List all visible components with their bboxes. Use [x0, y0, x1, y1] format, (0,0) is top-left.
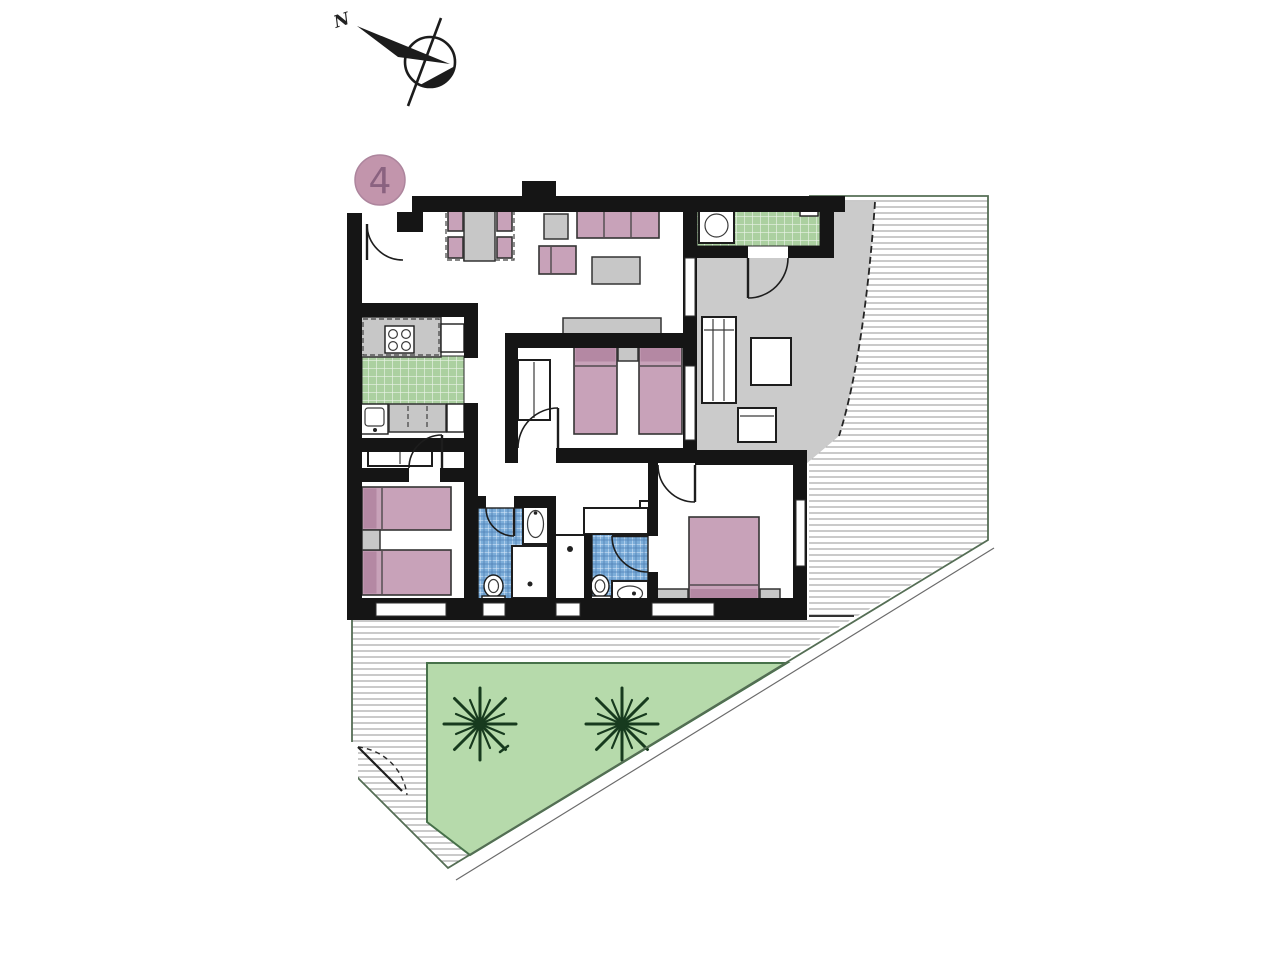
washing-machine	[699, 208, 734, 243]
compass: N	[330, 8, 455, 106]
hall-closet	[584, 508, 648, 534]
terrace-side-table	[738, 408, 776, 442]
floor-plan-drawing: N 4	[0, 0, 1280, 960]
shower-cabin	[555, 535, 585, 608]
armchair	[539, 246, 576, 274]
pillow	[364, 489, 377, 529]
side-table	[544, 214, 568, 239]
shower-head-icon	[567, 546, 573, 552]
gate-opening	[346, 742, 358, 804]
dining-chair	[448, 210, 463, 231]
unit-badge: 4	[355, 155, 405, 205]
pillow	[364, 552, 377, 594]
shaft-bump	[522, 181, 556, 198]
window-living-terrace	[685, 258, 695, 316]
compass-north-label: N	[330, 8, 353, 33]
window-bathroom1	[483, 603, 505, 616]
toilet	[591, 575, 609, 597]
palm-tree-icon	[586, 688, 658, 760]
window-master-south	[652, 603, 714, 616]
floor-plan-page: N 4	[0, 0, 1280, 960]
sideboard	[563, 318, 661, 334]
nightstand	[362, 530, 380, 550]
kitchen-counter-bottom	[389, 404, 446, 432]
coffee-table	[592, 257, 640, 284]
garden	[427, 663, 787, 855]
unit-number: 4	[369, 161, 392, 202]
window-master	[796, 500, 805, 566]
kitchen-floor-tile	[362, 356, 464, 404]
dining-chair	[497, 237, 512, 258]
kitchen-cabinet	[447, 404, 464, 432]
drain-icon	[528, 582, 533, 587]
window-shower	[556, 603, 580, 616]
shower-enclosure	[555, 535, 585, 608]
dining-chair	[448, 237, 463, 258]
window-bedroom-left	[376, 603, 446, 616]
terrace-table	[751, 338, 791, 385]
shower-tray	[512, 546, 548, 598]
kitchen-cabinet	[441, 324, 464, 352]
toilet	[484, 575, 503, 597]
dining-chair	[497, 210, 512, 231]
window-bedroom-middle	[685, 366, 695, 440]
compass-segment	[420, 66, 455, 87]
